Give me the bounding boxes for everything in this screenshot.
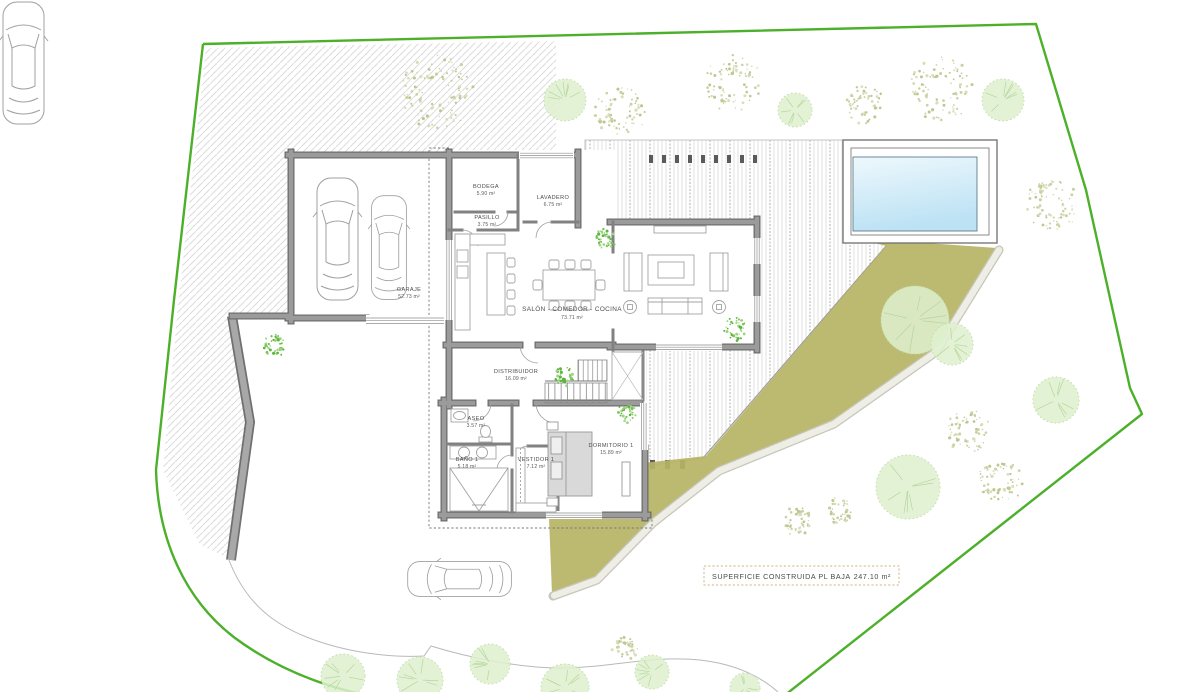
car-icon xyxy=(313,178,362,300)
room-area-dormitorio1: 15.89 m² xyxy=(600,450,622,456)
room-area-bano1: 5.18 m² xyxy=(458,464,477,470)
pergola-post xyxy=(740,155,744,163)
sideboard xyxy=(654,226,706,233)
tree-icon xyxy=(544,79,586,121)
tree-icon xyxy=(931,323,973,365)
room-area-lavadero: 6.75 m² xyxy=(544,202,563,208)
room-area-salon: 73.71 m² xyxy=(561,315,583,321)
room-label-bano1: BAÑO 1 xyxy=(456,456,479,463)
room-label-dormitorio1: DORMITORIO 1 xyxy=(588,443,633,449)
armchair xyxy=(710,253,728,291)
room-label-salon: SALÓN - COMEDOR - COCINA xyxy=(522,304,622,313)
room-area-vestidor1: 7.12 m² xyxy=(527,464,546,470)
kitchen-island xyxy=(487,253,505,315)
tree-icon xyxy=(1033,377,1079,423)
room-area-bodega: 5.90 m² xyxy=(477,191,496,197)
nightstand xyxy=(547,422,558,430)
nightstand xyxy=(547,498,558,506)
summary-value: 247.10 m² xyxy=(854,572,891,581)
floor-plan-canvas: BODEGA 5.90 m² LAVADERO 6.75 m² PASILLO … xyxy=(0,0,1200,692)
room-area-aseo: 3.57 m² xyxy=(467,423,486,429)
room-area-pasillo: 3.75 m² xyxy=(478,222,497,228)
pool xyxy=(843,140,997,243)
car-icon xyxy=(408,558,512,600)
pergola-post xyxy=(662,155,666,163)
pergola-post xyxy=(675,155,679,163)
pergola-post xyxy=(727,155,731,163)
car-icon xyxy=(368,196,410,300)
floor-plan-page: BODEGA 5.90 m² LAVADERO 6.75 m² PASILLO … xyxy=(0,0,1200,692)
dining-table xyxy=(543,270,595,300)
tree-icon xyxy=(470,644,510,684)
room-label-distribuidor: DISTRIBUIDOR xyxy=(494,369,538,375)
pergola-post xyxy=(701,155,705,163)
bench xyxy=(622,462,630,496)
room-area-distribuidor: 16.09 m² xyxy=(505,376,527,382)
pergola-post xyxy=(714,155,718,163)
room-label-garaje: GARAJE xyxy=(397,287,421,293)
room-label-vestidor1: VESTIDOR 1 xyxy=(518,457,555,463)
pergola-post xyxy=(753,155,757,163)
pergola-post xyxy=(649,155,653,163)
sofa xyxy=(648,298,702,314)
pergola-post xyxy=(688,155,692,163)
room-label-lavadero: LAVADERO xyxy=(537,195,570,201)
car-icon xyxy=(0,2,48,124)
tree-icon xyxy=(876,455,940,519)
room-area-garaje: 52.73 m² xyxy=(398,294,420,300)
garage-door xyxy=(366,315,444,324)
tree-icon xyxy=(778,93,812,127)
area-summary-box: SUPERFICIE CONSTRUIDA PL BAJA 247.10 m² xyxy=(704,566,899,585)
tree-icon xyxy=(982,79,1024,121)
armchair xyxy=(624,253,642,291)
room-label-pasillo: PASILLO xyxy=(474,215,500,221)
room-label-aseo: ASEO xyxy=(468,416,485,422)
pool-water xyxy=(853,157,977,231)
summary-label: SUPERFICIE CONSTRUIDA PL BAJA xyxy=(712,572,851,581)
room-label-bodega: BODEGA xyxy=(473,184,499,190)
tree-icon xyxy=(635,655,669,689)
